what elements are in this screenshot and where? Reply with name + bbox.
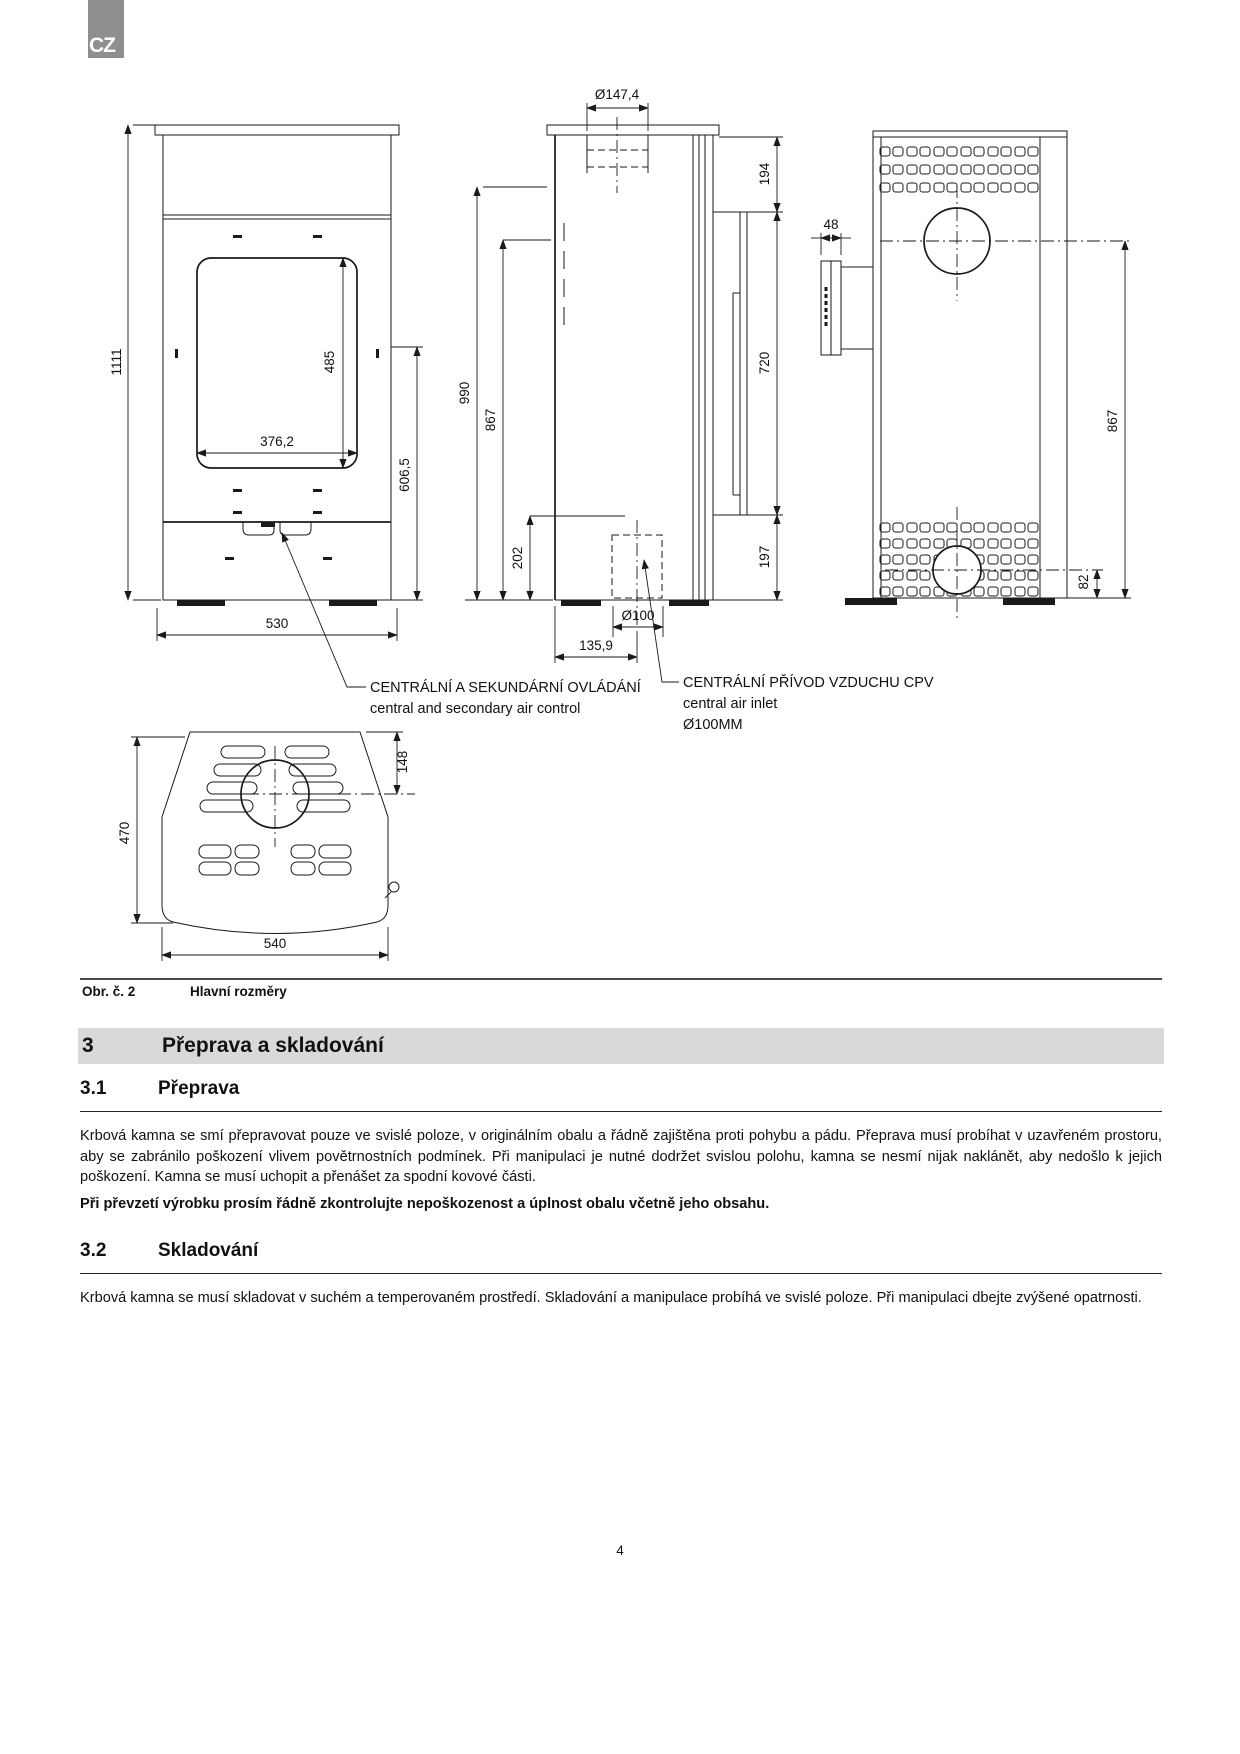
dim-handle-depth: 48 [823,217,838,232]
technical-drawing: 1111 485 376,2 606,5 530 [85,65,1165,965]
callout-control-en: central and secondary air control [370,701,580,717]
dim-top-width: 540 [264,936,287,951]
top-view: 470 148 540 [117,732,415,961]
dim-back-867: 867 [1105,410,1120,433]
dim-side-867: 867 [483,409,498,432]
dim-front-width: 530 [266,616,289,631]
callout-inlet: CENTRÁLNÍ PŘÍVOD VZDUCHU CPV central air… [644,560,934,733]
section-3-title: Přeprava a skladování [162,1034,384,1058]
callout-control: CENTRÁLNÍ A SEKUNDÁRNÍ OVLÁDÁNÍ central … [282,533,641,717]
door-handle-knob [389,882,399,892]
dim-flue-diameter: Ø147,4 [595,87,640,102]
dim-door-height: 606,5 [397,458,412,492]
figure-caption-text: Hlavní rozměry [190,984,287,999]
dim-window-height: 485 [322,351,337,374]
section-3-1-title: Přeprava [158,1078,239,1100]
dim-back-82: 82 [1076,574,1091,589]
dim-inlet-offset: 135,9 [579,638,613,653]
dim-side-990: 990 [457,382,472,405]
language-badge-label: CZ [88,35,116,58]
dim-side-720: 720 [757,352,772,375]
back-top-vents [880,147,1038,192]
section-3-1-heading: 3.1 Přeprava [80,1078,1162,1112]
front-view: 1111 485 376,2 606,5 530 [109,125,423,641]
dim-window-width: 376,2 [260,434,294,449]
section-3-1-number: 3.1 [80,1078,158,1100]
back-view: 48 [811,131,1131,621]
section-3-2-title: Skladování [158,1240,258,1262]
section-3-2-paragraph: Krbová kamna se musí skladovat v suchém … [80,1288,1162,1309]
section-3-1-note: Při převzetí výrobku prosím řádně zkontr… [80,1194,1162,1215]
figure-caption-label: Obr. č. 2 [82,984,135,999]
dim-top-depth: 470 [117,822,132,845]
dim-top-148: 148 [395,751,410,774]
section-3-2-number: 3.2 [80,1240,158,1262]
callout-inlet-dia: Ø100MM [683,717,743,733]
figure-divider [80,978,1162,980]
callout-control-cz: CENTRÁLNÍ A SEKUNDÁRNÍ OVLÁDÁNÍ [370,679,641,696]
dim-side-194: 194 [757,162,772,185]
dimension-drawing: 1111 485 376,2 606,5 530 [85,65,1165,965]
section-3-2-heading: 3.2 Skladování [80,1240,1162,1274]
dim-side-202: 202 [510,547,525,570]
section-3-1-paragraph: Krbová kamna se smí přepravovat pouze ve… [80,1126,1162,1188]
callout-inlet-en: central air inlet [683,696,777,712]
callout-inlet-cz: CENTRÁLNÍ PŘÍVOD VZDUCHU CPV [683,674,934,691]
figure-caption: Obr. č. 2 Hlavní rozměry [82,984,135,999]
dim-front-height: 1111 [109,348,124,375]
language-badge: CZ [88,0,124,58]
manual-page: CZ [0,0,1240,1754]
dim-inlet-diameter: Ø100 [621,608,654,623]
side-view: 990 867 202 194 720 197 Ø147,4 [457,87,783,663]
dim-side-197: 197 [757,546,772,569]
page-number: 4 [0,1543,1240,1558]
section-3-number: 3 [78,1034,162,1058]
section-3-heading: 3 Přeprava a skladování [78,1028,1164,1064]
